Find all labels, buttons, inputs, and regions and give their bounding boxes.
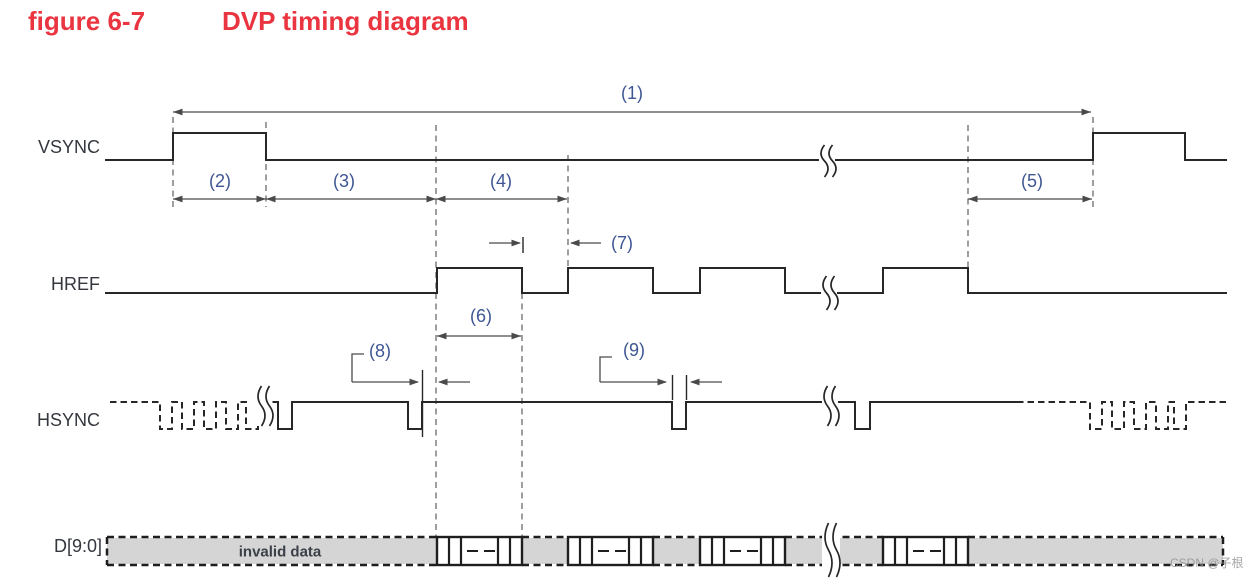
dimension-6: (6)	[437, 306, 521, 339]
data-bus-valid-block	[437, 537, 522, 565]
dimension-label-7: (7)	[611, 233, 633, 253]
dimension-label-4: (4)	[490, 171, 512, 191]
dimension-label-8: (8)	[369, 341, 391, 361]
data-bus-valid-block	[568, 537, 653, 565]
dimension-label-6: (6)	[470, 306, 492, 326]
page: figure 6-7 DVP timing diagram (1)(2)(3)(…	[0, 0, 1258, 579]
dimension-label-9: (9)	[623, 340, 645, 360]
hsync-break-left	[256, 386, 274, 426]
data-bus-band: invalid data	[107, 537, 1223, 565]
href-break	[821, 276, 838, 310]
dimension-4: (4)	[436, 171, 567, 202]
hsync-waveform	[110, 402, 1227, 429]
extension-dashed-lines	[173, 117, 1093, 537]
dbus-break	[822, 523, 840, 577]
vsync-waveform	[105, 133, 1227, 160]
gap-dimension-8: (8)	[352, 341, 470, 385]
signal-label-dbus: D[9:0]	[54, 536, 102, 556]
dimension-label-1: (1)	[621, 83, 643, 103]
href-waveform	[105, 268, 1227, 293]
signal-labels: VSYNCHREFHSYNCD[9:0]	[37, 137, 102, 556]
signal-label-vsync: VSYNC	[38, 137, 100, 157]
dimension-label-2: (2)	[209, 171, 231, 191]
gap-dimension-9: (9)	[600, 340, 722, 385]
dimension-1: (1)	[173, 83, 1091, 115]
signal-label-hsync: HSYNC	[37, 410, 100, 430]
data-bus-valid-block	[700, 537, 785, 565]
dimension-label-3: (3)	[333, 171, 355, 191]
data-bus-valid-block	[883, 537, 968, 565]
invalid-data-label: invalid data	[239, 544, 322, 561]
watermark: CSDN @子根	[1170, 554, 1244, 571]
dimension-3: (3)	[266, 171, 436, 202]
timing-diagram-svg: (1)(2)(3)(4)(5)(6)(7)(8)(9)invalid dataV…	[0, 0, 1258, 579]
gap-dimension-7: (7)	[489, 233, 633, 253]
hsync-break-right	[822, 386, 839, 426]
vsync-break	[819, 145, 836, 177]
dimension-label-5: (5)	[1021, 171, 1043, 191]
dimension-2: (2)	[173, 171, 266, 202]
signal-label-href: HREF	[51, 274, 100, 294]
dimension-5: (5)	[968, 171, 1092, 202]
